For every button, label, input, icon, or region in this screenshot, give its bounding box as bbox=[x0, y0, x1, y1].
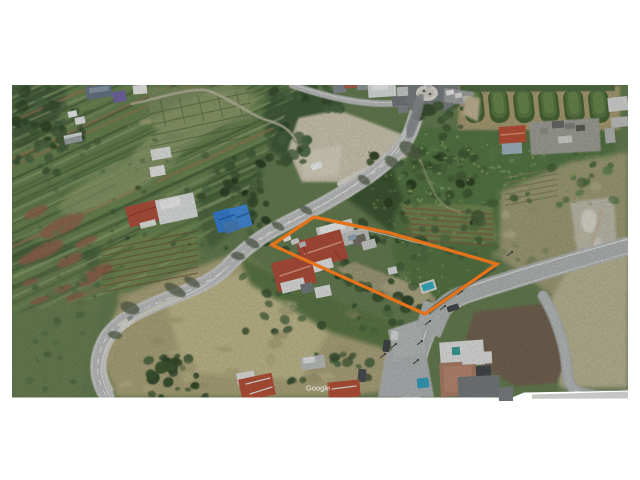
svg-text:Google: Google bbox=[306, 384, 330, 393]
